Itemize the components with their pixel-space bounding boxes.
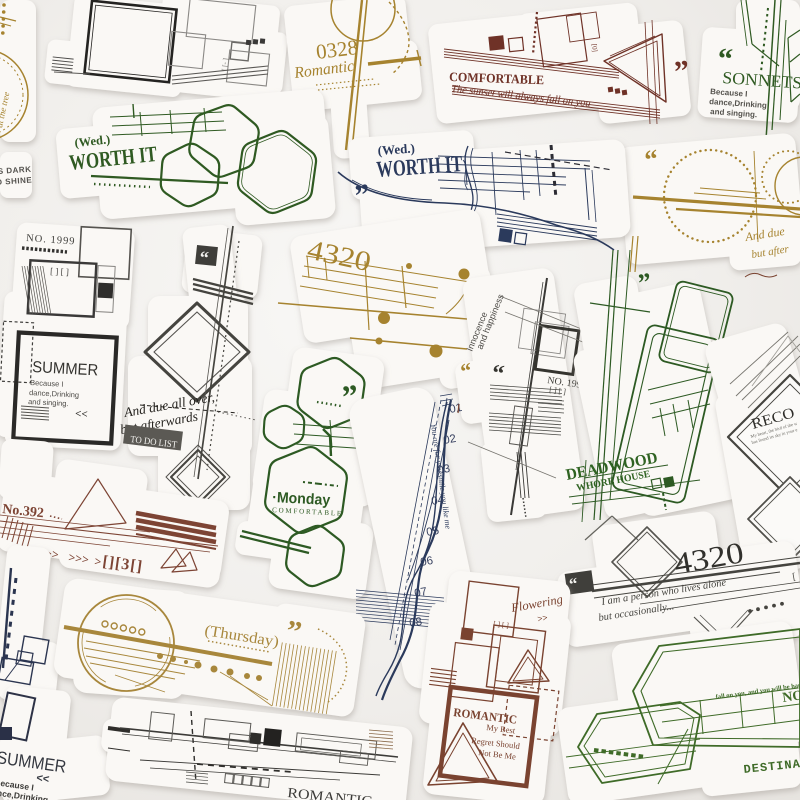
svg-text:SUMMER: SUMMER: [32, 359, 99, 379]
svg-text:[ -] ]: [ -] ]: [221, 58, 230, 72]
svg-text:NO: NO: [781, 688, 800, 706]
svg-text:<<: <<: [36, 772, 50, 786]
svg-text:>>: >>: [537, 612, 549, 624]
svg-text:07: 07: [413, 586, 428, 600]
svg-text:>>>: >>>: [68, 550, 90, 567]
svg-text:[ ] [ ]: [ ] [ ]: [493, 619, 510, 630]
svg-text:[0]: [0]: [590, 43, 599, 52]
svg-text:[ ] [ ]: [ ] [ ]: [50, 266, 69, 277]
svg-text:Because I: Because I: [30, 378, 64, 389]
svg-text:<<: <<: [75, 408, 88, 421]
